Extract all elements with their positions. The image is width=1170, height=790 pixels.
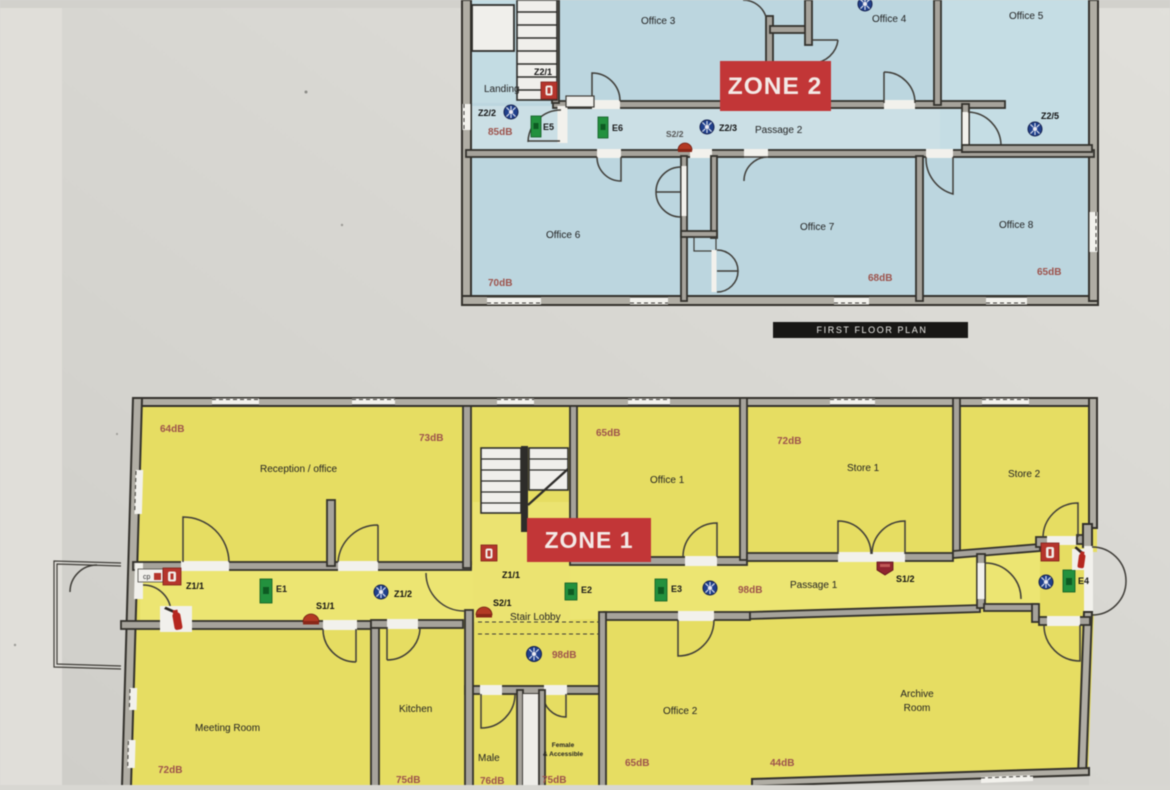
svg-text:65dB: 65dB	[625, 758, 649, 769]
svg-text:& Accessible: & Accessible	[543, 751, 584, 758]
svg-text:Room: Room	[904, 703, 931, 714]
svg-text:Z1/2: Z1/2	[394, 589, 412, 599]
svg-text:75dB: 75dB	[542, 775, 566, 785]
svg-text:E2: E2	[581, 585, 592, 595]
svg-text:Z2/3: Z2/3	[719, 123, 737, 133]
svg-text:E4: E4	[1078, 576, 1089, 586]
svg-text:Stair Lobby: Stair Lobby	[510, 612, 561, 623]
svg-text:Z2/5: Z2/5	[1041, 111, 1059, 121]
svg-text:98dB: 98dB	[552, 650, 576, 661]
svg-text:Office 5: Office 5	[1009, 11, 1044, 22]
svg-text:Z2/2: Z2/2	[478, 108, 496, 118]
svg-text:85dB: 85dB	[488, 127, 512, 138]
svg-text:75dB: 75dB	[396, 775, 420, 785]
svg-text:72dB: 72dB	[158, 765, 182, 776]
svg-text:65dB: 65dB	[596, 428, 620, 439]
svg-text:Male: Male	[478, 753, 500, 764]
svg-text:44dB: 44dB	[770, 758, 794, 769]
svg-text:Z1/1: Z1/1	[502, 570, 520, 580]
svg-text:Store 2: Store 2	[1008, 469, 1041, 480]
svg-text:65dB: 65dB	[1037, 267, 1061, 278]
svg-text:S1/2: S1/2	[896, 574, 915, 584]
svg-text:73dB: 73dB	[419, 433, 443, 444]
svg-text:Office 4: Office 4	[872, 14, 907, 25]
svg-text:cp: cp	[143, 574, 151, 581]
svg-text:Kitchen: Kitchen	[399, 704, 432, 715]
svg-text:98dB: 98dB	[738, 585, 762, 596]
svg-text:Passage 1: Passage 1	[790, 580, 838, 591]
svg-text:Office 6: Office 6	[546, 230, 581, 241]
svg-text:Office 3: Office 3	[641, 16, 676, 27]
svg-text:E3: E3	[671, 584, 682, 594]
svg-text:Z1/1: Z1/1	[186, 581, 204, 591]
svg-text:S1/1: S1/1	[316, 601, 335, 611]
svg-text:Office 7: Office 7	[800, 222, 835, 233]
svg-text:E6: E6	[612, 123, 623, 133]
svg-text:Z2/1: Z2/1	[534, 67, 552, 77]
svg-text:Store 1: Store 1	[847, 463, 880, 474]
svg-text:64dB: 64dB	[160, 424, 184, 435]
svg-text:Passage 2: Passage 2	[755, 125, 803, 136]
svg-text:E5: E5	[543, 122, 554, 132]
svg-text:Office 1: Office 1	[650, 475, 685, 486]
svg-text:ZONE 2: ZONE 2	[728, 73, 823, 100]
svg-text:Meeting Room: Meeting Room	[195, 723, 260, 734]
svg-text:Archive: Archive	[900, 689, 934, 700]
svg-text:Office 8: Office 8	[999, 220, 1034, 231]
svg-text:E1: E1	[276, 584, 287, 594]
svg-text:68dB: 68dB	[868, 273, 892, 284]
svg-text:72dB: 72dB	[777, 436, 801, 447]
svg-text:76dB: 76dB	[480, 776, 504, 785]
svg-text:Female: Female	[552, 742, 575, 749]
svg-text:FIRST FLOOR PLAN: FIRST FLOOR PLAN	[817, 325, 928, 335]
svg-text:Office 2: Office 2	[663, 706, 698, 717]
svg-text:Reception / office: Reception / office	[260, 464, 338, 475]
svg-text:Landing: Landing	[484, 84, 520, 95]
svg-text:70dB: 70dB	[488, 278, 512, 289]
svg-text:S2/2: S2/2	[666, 129, 684, 139]
svg-text:ZONE 1: ZONE 1	[544, 527, 633, 553]
svg-text:S2/1: S2/1	[493, 598, 512, 608]
